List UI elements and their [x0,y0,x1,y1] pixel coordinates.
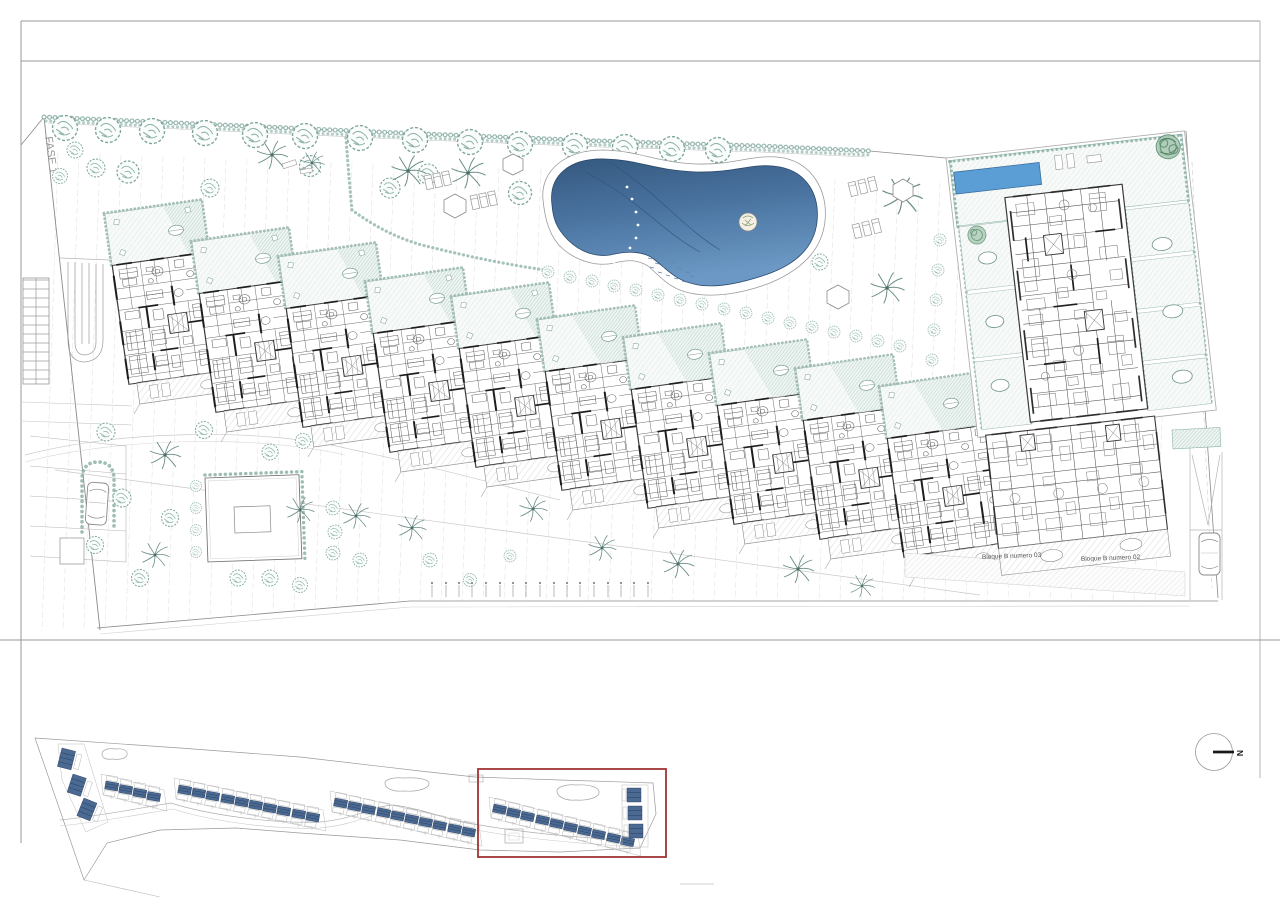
svg-text:N: N [1235,750,1245,756]
